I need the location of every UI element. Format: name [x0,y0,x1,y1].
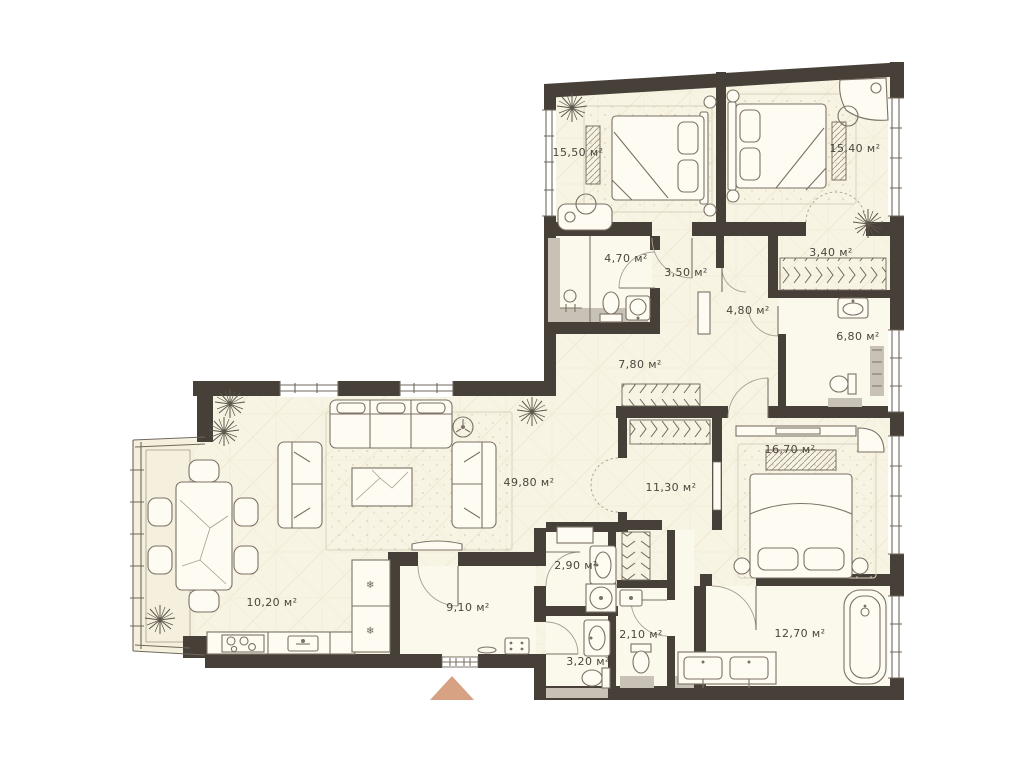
chair-icon [189,460,219,482]
chair-icon [234,546,258,574]
room-area-label: 6,80 м² [836,330,880,343]
closet-rail-icon [780,258,886,290]
toilet-tank [848,374,856,394]
wall-bathroom-2-left [778,334,786,406]
shower-strip [548,238,560,322]
shelf [557,527,593,543]
headboard [728,102,736,190]
wall-bottom-left [205,654,442,668]
room-area-label: 49,80 м² [504,476,555,489]
room-area-label: 7,80 м² [618,358,662,371]
wall-wardrobe-left [618,418,627,458]
toilet-icon [830,376,848,392]
room-area-label: 2,10 м² [619,628,663,641]
chair-icon [148,498,172,526]
pillow [678,122,698,154]
room-area-label: 10,20 м² [247,596,298,609]
room-area-label: 16,70 м² [765,443,816,456]
fridge-column-icon: ❄ ❄ [352,560,390,652]
room-area-label: 3,40 м² [809,246,853,259]
wardrobe-rail-icon [630,420,710,444]
washing-machine-icon [586,584,616,612]
tap [852,300,855,303]
wall-bathroom-1-bottom [544,322,660,334]
chair-icon [148,546,172,574]
tap [590,637,593,640]
chair-icon [234,498,258,526]
pillow [758,548,798,570]
room-area-label: 2,90 м² [554,559,598,572]
toilet-icon [603,292,619,314]
wall-wc-1-top [617,580,675,588]
pillow [740,148,760,180]
wall-hall-1-right [716,230,724,268]
wall-wc-1-right [667,636,675,688]
room-area-label: 9,10 м² [446,601,490,614]
wall-bay-corner-top [197,381,213,442]
wall-bottom-left [478,654,546,668]
sofa-icon [278,442,322,528]
wall-living-top [453,381,556,396]
freezer-icon: ❄ [366,580,374,591]
tap [629,596,633,600]
pillow [804,548,844,570]
nightstand-icon [727,190,739,202]
corridor-cabinet [698,292,710,334]
nightstand-icon [852,558,868,574]
threshold [546,688,608,698]
room-area-label: 15,40 м² [830,142,881,155]
desk-icon [558,204,612,230]
wall-under-bedrooms [692,222,806,236]
entrance-arrow [430,676,474,700]
wall-living-top [338,381,400,396]
freezer-icon: ❄ [366,626,374,637]
floor-plan-canvas: ❄ ❄ [0,0,1024,768]
wall-niche [713,462,721,510]
window-bathroom-3 [888,596,904,678]
window-bedroom-1 [542,110,556,216]
room-area-label: 12,70 м² [775,627,826,640]
tap [637,317,640,320]
wc-2-furniture [582,620,610,688]
nightstand-icon [704,204,716,216]
coffee-table-icon [352,468,412,506]
wall-upper-left [544,84,556,112]
room-area-label: 15,50 м² [553,146,604,159]
wall-closet-bottom [768,290,890,298]
window-living-2 [400,380,453,397]
towel-rail [870,346,884,396]
toilet-icon [633,651,649,673]
wall-bedroom-3-top [768,406,890,418]
wall-bathroom-1-right [650,236,660,250]
pillow [678,160,698,192]
window-bedroom-3 [888,436,904,554]
room-area-label: 3,50 м² [664,266,708,279]
sofa-icon [452,442,496,528]
sofa-pillow [417,403,445,413]
room-area-label: 4,80 м² [726,304,770,317]
dining-table-icon [176,482,232,590]
window-bathroom-2 [888,330,904,412]
threshold [828,398,862,407]
coat-rack-icon [622,384,700,406]
wall-between-bedrooms [716,72,726,230]
console-table [412,541,462,550]
wall-hall-top [388,552,418,566]
floor-plan-svg: ❄ ❄ [0,0,1024,768]
nightstand-icon [727,90,739,102]
pillow [740,110,760,142]
shoe-bench-icon [505,638,529,654]
wall-closet-left [768,236,778,298]
hall-rail-icon [622,532,650,580]
wall-hall-left [390,566,400,656]
room-area-label: 4,70 м² [604,252,648,265]
wall-corridor-bottom [616,406,728,418]
wall-left-of-utility [534,586,546,622]
nightstand-icon [734,558,750,574]
toilet-tank [600,314,622,322]
sofa-pillow [377,403,405,413]
wall-bedroom-3-bottom [700,574,712,586]
threshold [620,676,654,688]
toilet-icon [582,670,602,686]
bathtub-icon [844,590,886,684]
room-area-label: 3,20 м² [566,655,610,668]
wall-left-of-utility [534,528,546,552]
window-bedroom-2 [888,98,904,216]
nightstand-icon [704,96,716,108]
window-living-1 [280,380,338,397]
double-vanity-icon [678,652,776,688]
room-area-label: 11,30 м² [646,481,697,494]
chair-icon [189,590,219,612]
sofa-pillow [337,403,365,413]
toilet-tank [602,668,610,688]
wall-hall-top [458,552,546,566]
entrance-door-sill [442,657,478,667]
sink-icon [584,620,610,656]
wall-wc-1-right [667,530,675,600]
